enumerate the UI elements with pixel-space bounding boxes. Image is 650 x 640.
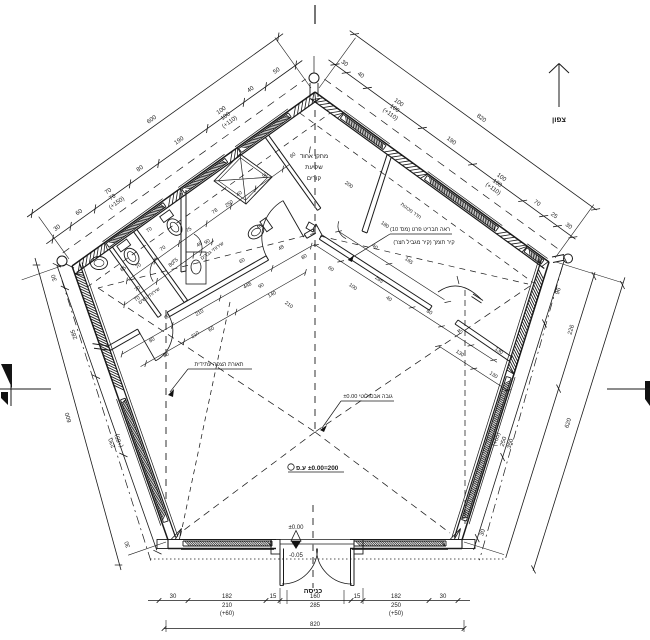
svg-text:250: 250 — [391, 603, 402, 609]
svg-text:160: 160 — [310, 594, 321, 600]
svg-text:מתקן אחוד: מתקן אחוד — [300, 153, 328, 160]
svg-text:182: 182 — [222, 594, 233, 600]
svg-text:30: 30 — [440, 594, 447, 600]
svg-text:שקיעת: שקיעת — [305, 164, 323, 171]
svg-text:(+50): (+50) — [389, 611, 403, 617]
svg-text:ע.פ: ע.פ — [296, 465, 306, 472]
svg-text:(+60): (+60) — [220, 611, 234, 617]
svg-text:182: 182 — [391, 594, 402, 600]
svg-text:(קיר מגביל חצר) קיר תומך: (קיר מגביל חצר) קיר תומך — [393, 239, 454, 246]
svg-text:30: 30 — [170, 594, 177, 600]
svg-text:קורים: קורים — [307, 175, 322, 182]
svg-text:-0.05: -0.05 — [289, 553, 303, 559]
svg-text:15: 15 — [270, 594, 277, 600]
svg-text:15: 15 — [354, 594, 361, 600]
svg-text:210: 210 — [222, 603, 233, 609]
svg-text:גובה אבסולוטי ±0.00: גובה אבסולוטי ±0.00 — [343, 393, 393, 400]
svg-text:תאורת הצפה עתידית: תאורת הצפה עתידית — [194, 362, 243, 368]
svg-text:±0.00=200: ±0.00=200 — [308, 465, 339, 472]
svg-text:820: 820 — [310, 622, 321, 628]
svg-text:285: 285 — [310, 603, 321, 609]
svg-text:צפון: צפון — [552, 115, 566, 124]
svg-text:ראה חבריט פרט (מס' 10): ראה חבריט פרט (מס' 10) — [390, 227, 450, 233]
svg-text:±0.00: ±0.00 — [289, 525, 305, 531]
